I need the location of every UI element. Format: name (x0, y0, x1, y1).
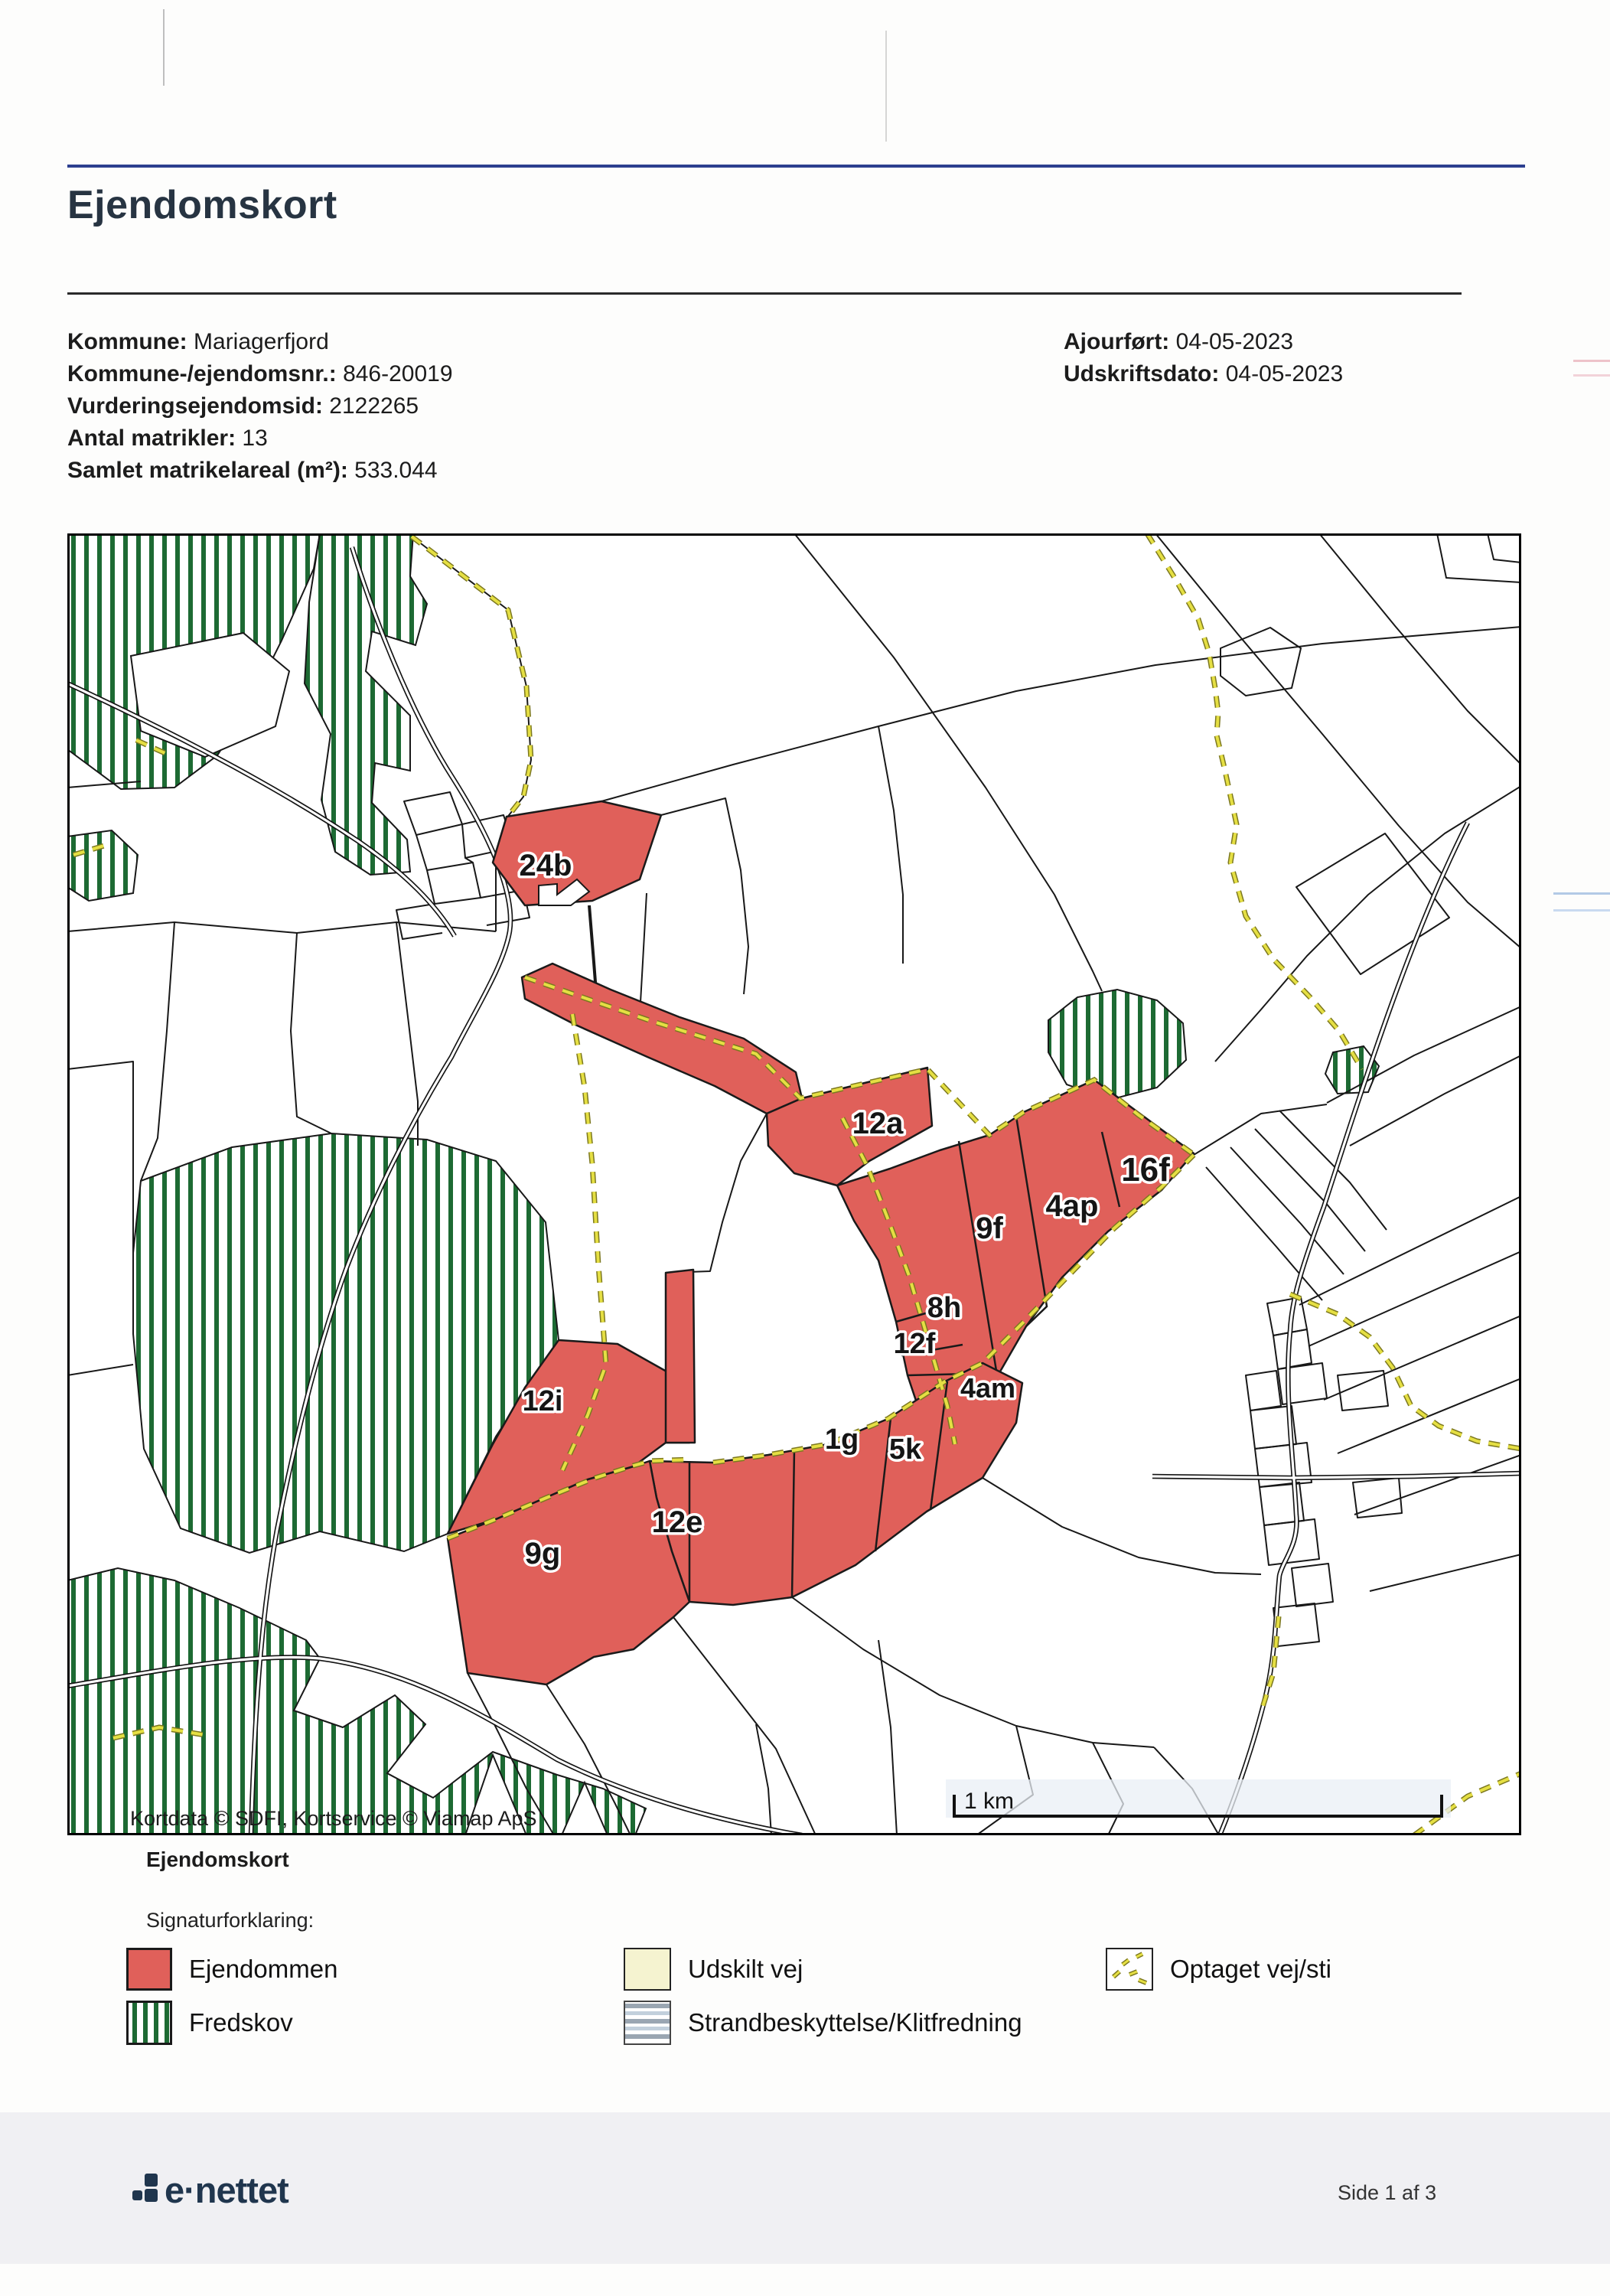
legend-item-fredskov: Fredskov (126, 2001, 293, 2045)
cadastral-map: 24b 12a 16f 4ap 9f 8h 12f 4am 12i 1g 5k … (67, 533, 1521, 1835)
logo-square-icon (132, 2190, 142, 2200)
info-matrikler-value: 13 (242, 426, 267, 451)
info-areal-label: Samlet matrikelareal (m²): (67, 458, 348, 483)
property-info-right: Ajourført: 04-05-2023 Udskriftsdato: 04-… (1064, 326, 1343, 390)
map-caption: Ejendomskort (146, 1848, 289, 1872)
parcel-label-24b: 24b (520, 849, 572, 882)
scan-artifact (163, 9, 165, 86)
legend-label: Ejendommen (189, 1955, 337, 1984)
legend-label: Fredskov (189, 2008, 293, 2037)
header-rule-bottom (67, 292, 1462, 295)
legend-item-optaget-vej: Optaget vej/sti (1106, 1948, 1331, 1991)
legend-label: Udskilt vej (688, 1955, 803, 1984)
page-number: Side 1 af 3 (1338, 2181, 1436, 2205)
fredskov-swatch (126, 2001, 172, 2045)
info-vurderingsid-value: 2122265 (329, 393, 419, 419)
parcel-label-12f: 12f (894, 1328, 936, 1360)
parcel-label-4am: 4am (960, 1372, 1015, 1404)
scale-bar-backing (946, 1779, 1451, 1818)
info-ajourfort: Ajourført: 04-05-2023 (1064, 326, 1343, 358)
info-kommune-label: Kommune: (67, 329, 187, 354)
parcel-label-9f: 9f (976, 1212, 1003, 1245)
logo-square-icon (145, 2189, 158, 2202)
info-areal-value: 533.044 (354, 458, 437, 483)
legend-item-ejendommen: Ejendommen (126, 1948, 337, 1991)
parcel-label-12e: 12e (652, 1505, 703, 1539)
info-matrikler: Antal matrikler: 13 (67, 422, 453, 455)
legend-item-strandbeskyttelse: Strandbeskyttelse/Klitfredning (624, 2001, 1022, 2045)
logo-text: e·nettet (165, 2169, 288, 2211)
optaget-vej-swatch (1106, 1948, 1153, 1991)
parcel-label-12i: 12i (523, 1385, 563, 1417)
parcel-label-12a: 12a (852, 1107, 904, 1140)
scale-label: 1 km (964, 1789, 1014, 1814)
legend-label: Optaget vej/sti (1170, 1955, 1331, 1984)
strandbeskyttelse-swatch (624, 2001, 671, 2045)
property-info-left: Kommune: Mariagerfjord Kommune-/ejendoms… (67, 326, 453, 487)
scan-artifact (1553, 909, 1610, 912)
info-udskriftsdato-value: 04-05-2023 (1226, 361, 1343, 386)
info-matrikler-label: Antal matrikler: (67, 426, 236, 451)
info-ejendomsnr-value: 846-20019 (343, 361, 452, 386)
info-ejendomsnr: Kommune-/ejendomsnr.: 846-20019 (67, 358, 453, 390)
info-vurderingsid: Vurderingsejendomsid: 2122265 (67, 390, 453, 422)
scale-bar: 1 km (946, 1779, 1451, 1818)
property-swatch (126, 1948, 172, 1991)
cadastral-map-svg: 24b 12a 16f 4ap 9f 8h 12f 4am 12i 1g 5k … (67, 533, 1521, 1835)
info-udskriftsdato: Udskriftsdato: 04-05-2023 (1064, 358, 1343, 390)
map-attribution: Kortdata © SDFI, Kortservice © Viamap Ap… (130, 1807, 537, 1830)
header-rule-top (67, 165, 1525, 168)
scan-artifact (1573, 374, 1610, 377)
parcel-label-16f: 16f (1121, 1151, 1170, 1189)
scan-artifact (1553, 892, 1610, 895)
parcel-label-5k: 5k (889, 1433, 922, 1466)
info-udskriftsdato-label: Udskriftsdato: (1064, 361, 1219, 386)
legend-item-udskilt-vej: Udskilt vej (624, 1948, 803, 1991)
info-ajourfort-value: 04-05-2023 (1176, 329, 1293, 354)
info-ajourfort-label: Ajourført: (1064, 329, 1169, 354)
scan-artifact (885, 31, 887, 142)
legend-label: Strandbeskyttelse/Klitfredning (688, 2008, 1022, 2037)
info-kommune: Kommune: Mariagerfjord (67, 326, 453, 358)
parcel-shape-neck (666, 1270, 695, 1443)
udskilt-vej-swatch (624, 1948, 671, 1991)
info-ejendomsnr-label: Kommune-/ejendomsnr.: (67, 361, 337, 386)
info-vurderingsid-label: Vurderingsejendomsid: (67, 393, 323, 419)
page-title: Ejendomskort (67, 182, 337, 228)
info-areal: Samlet matrikelareal (m²): 533.044 (67, 455, 453, 487)
parcel-label-8h: 8h (927, 1292, 961, 1324)
parcel-label-9g: 9g (525, 1537, 561, 1570)
legend-heading: Signaturforklaring: (146, 1909, 314, 1932)
parcel-label-4ap: 4ap (1046, 1189, 1099, 1223)
parcel-label-1g: 1g (825, 1424, 859, 1456)
info-kommune-value: Mariagerfjord (194, 329, 329, 354)
scan-artifact (1573, 360, 1610, 362)
logo-square-icon (145, 2174, 158, 2187)
